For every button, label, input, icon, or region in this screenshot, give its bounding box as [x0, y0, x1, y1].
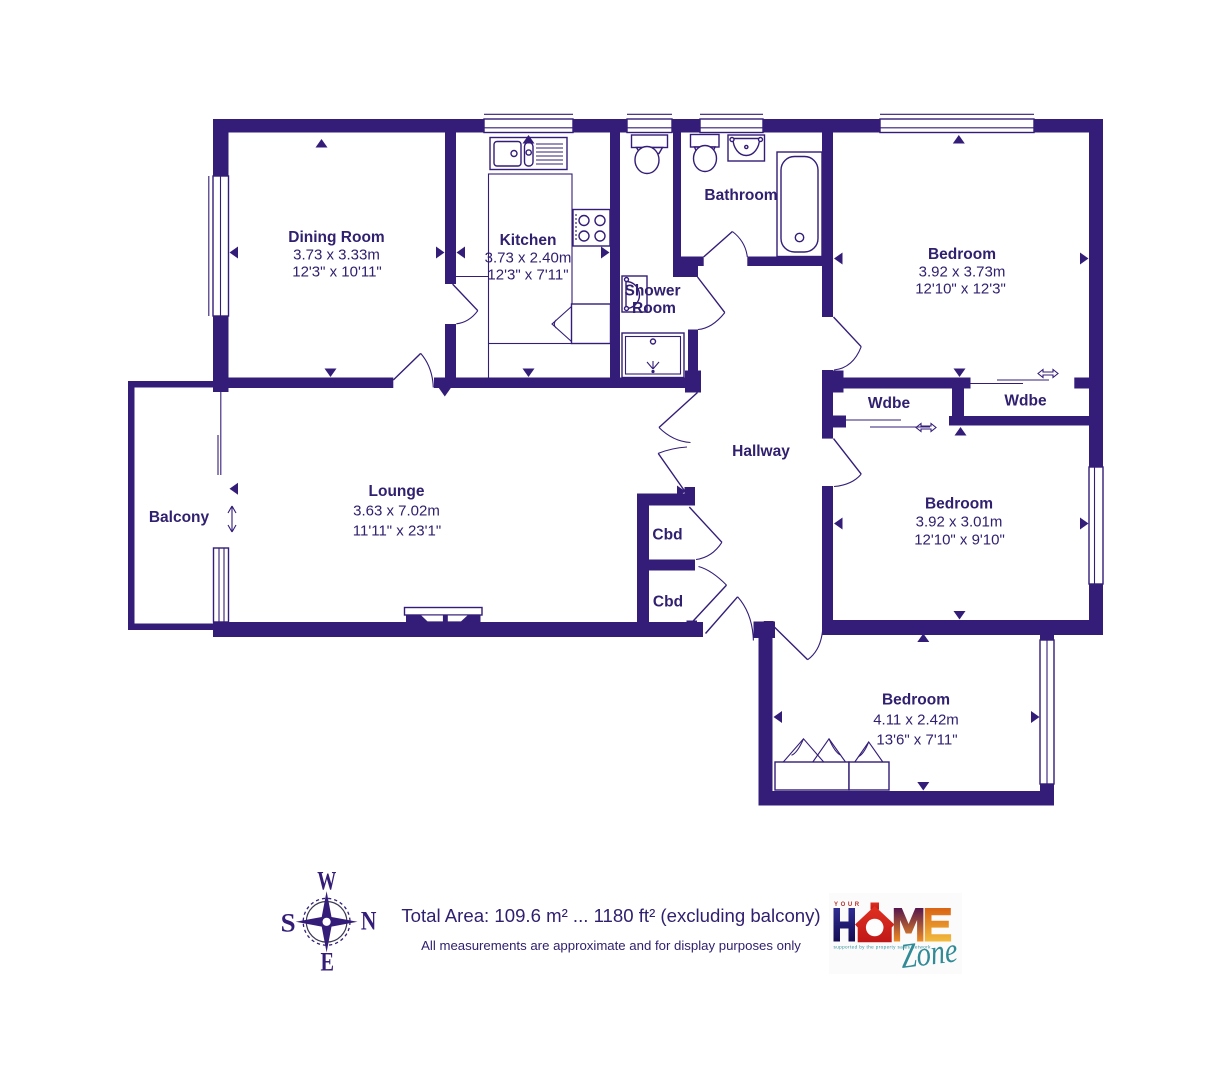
svg-text:12'10" x 12'3": 12'10" x 12'3" [915, 281, 1006, 298]
svg-text:3.73 x 2.40m: 3.73 x 2.40m [485, 250, 572, 267]
svg-text:13'6" x 7'11": 13'6" x 7'11" [876, 732, 957, 749]
svg-text:Bathroom: Bathroom [704, 187, 777, 204]
svg-text:Kitchen: Kitchen [500, 232, 557, 249]
svg-text:Cbd: Cbd [652, 527, 682, 544]
svg-text:Dining Room: Dining Room [288, 229, 384, 246]
svg-text:3.92 x 3.01m: 3.92 x 3.01m [916, 514, 1003, 531]
svg-text:12'10" x 9'10": 12'10" x 9'10" [914, 532, 1005, 549]
svg-text:Zone: Zone [898, 930, 959, 976]
svg-text:Total Area: 109.6 m² ... 1180: Total Area: 109.6 m² ... 1180 ft² (exclu… [401, 905, 820, 926]
svg-text:12'3" x 7'11": 12'3" x 7'11" [487, 267, 568, 284]
svg-text:All measurements are approxima: All measurements are approximate and for… [421, 938, 801, 953]
svg-text:W: W [317, 867, 336, 896]
svg-text:4.11 x 2.42m: 4.11 x 2.42m [873, 712, 959, 729]
svg-text:3.63 x 7.02m: 3.63 x 7.02m [353, 503, 440, 520]
svg-text:11'11" x 23'1": 11'11" x 23'1" [353, 523, 441, 540]
svg-text:E: E [320, 947, 334, 976]
svg-text:Cbd: Cbd [653, 594, 683, 611]
svg-text:Lounge: Lounge [369, 483, 425, 500]
svg-text:Hallway: Hallway [732, 443, 790, 460]
svg-text:Bedroom: Bedroom [882, 692, 950, 709]
svg-text:Room: Room [632, 300, 676, 317]
svg-text:12'3" x 10'11": 12'3" x 10'11" [292, 264, 382, 281]
svg-text:N: N [361, 906, 377, 935]
svg-text:Balcony: Balcony [149, 509, 210, 526]
svg-text:3.92 x 3.73m: 3.92 x 3.73m [919, 264, 1006, 281]
svg-text:S: S [281, 909, 296, 938]
svg-text:Shower: Shower [625, 283, 681, 300]
svg-text:Wdbe: Wdbe [1004, 393, 1047, 410]
svg-text:YOUR: YOUR [834, 902, 862, 908]
svg-text:3.73 x 3.33m: 3.73 x 3.33m [293, 247, 380, 264]
svg-text:Wdbe: Wdbe [868, 395, 911, 412]
svg-text:Bedroom: Bedroom [928, 246, 996, 263]
svg-text:Bedroom: Bedroom [925, 496, 993, 513]
